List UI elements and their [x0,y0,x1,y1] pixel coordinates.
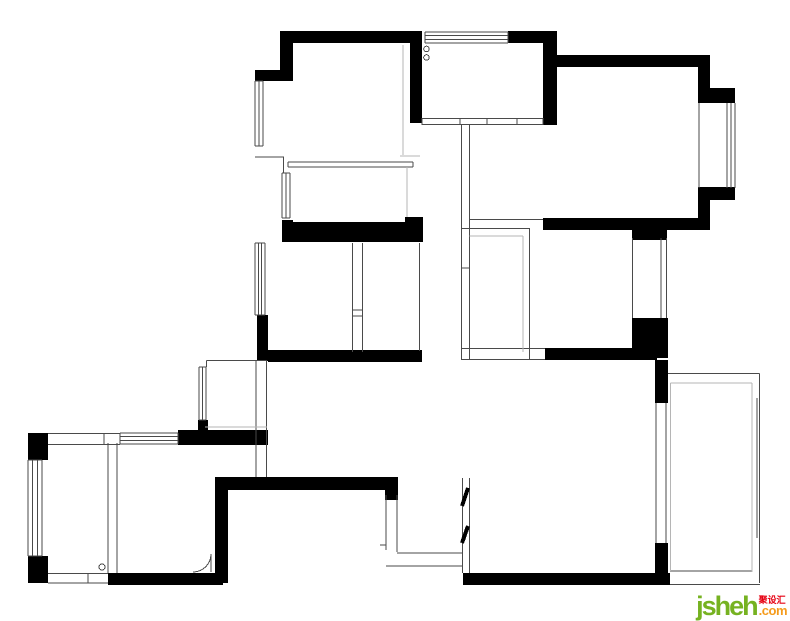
wall-segment [178,430,268,445]
wall-segment [215,477,398,490]
floor-plan [0,0,790,617]
wall-segment [632,225,667,240]
wall-segment [198,420,208,432]
wall-segment [543,31,557,125]
wall-segment [551,55,710,67]
wall-segment [410,31,422,123]
wall-segment [707,187,735,200]
wall-segment [280,31,420,43]
symbol-circle [99,564,105,570]
wall-segment [463,573,670,585]
wall-segment [707,88,735,103]
wall-segment [28,433,48,460]
door-swing-arc [193,554,211,572]
watermark-brand-text: jsheh [696,597,757,616]
wall-segment [282,222,423,242]
wall-segment [280,31,293,71]
wall-segment [268,350,422,362]
wall-segment [108,573,223,585]
wall-segment [632,318,668,358]
symbol-circle [424,55,430,61]
wall-segment [28,556,48,583]
wall-segment [385,477,398,500]
watermark-logo: jsheh 聚设汇 .com [696,596,787,616]
symbol-circle [424,46,430,52]
wall-segment [257,315,268,361]
floor-plan-svg [0,0,790,617]
wall-segment [215,477,228,583]
wall-segment [543,218,710,230]
wall-segment [405,217,423,242]
wall-segment [255,70,293,81]
watermark-suffix-text: .com [759,605,787,616]
wall-segment [655,360,668,403]
watermark-right-column: 聚设汇 .com [759,596,787,616]
